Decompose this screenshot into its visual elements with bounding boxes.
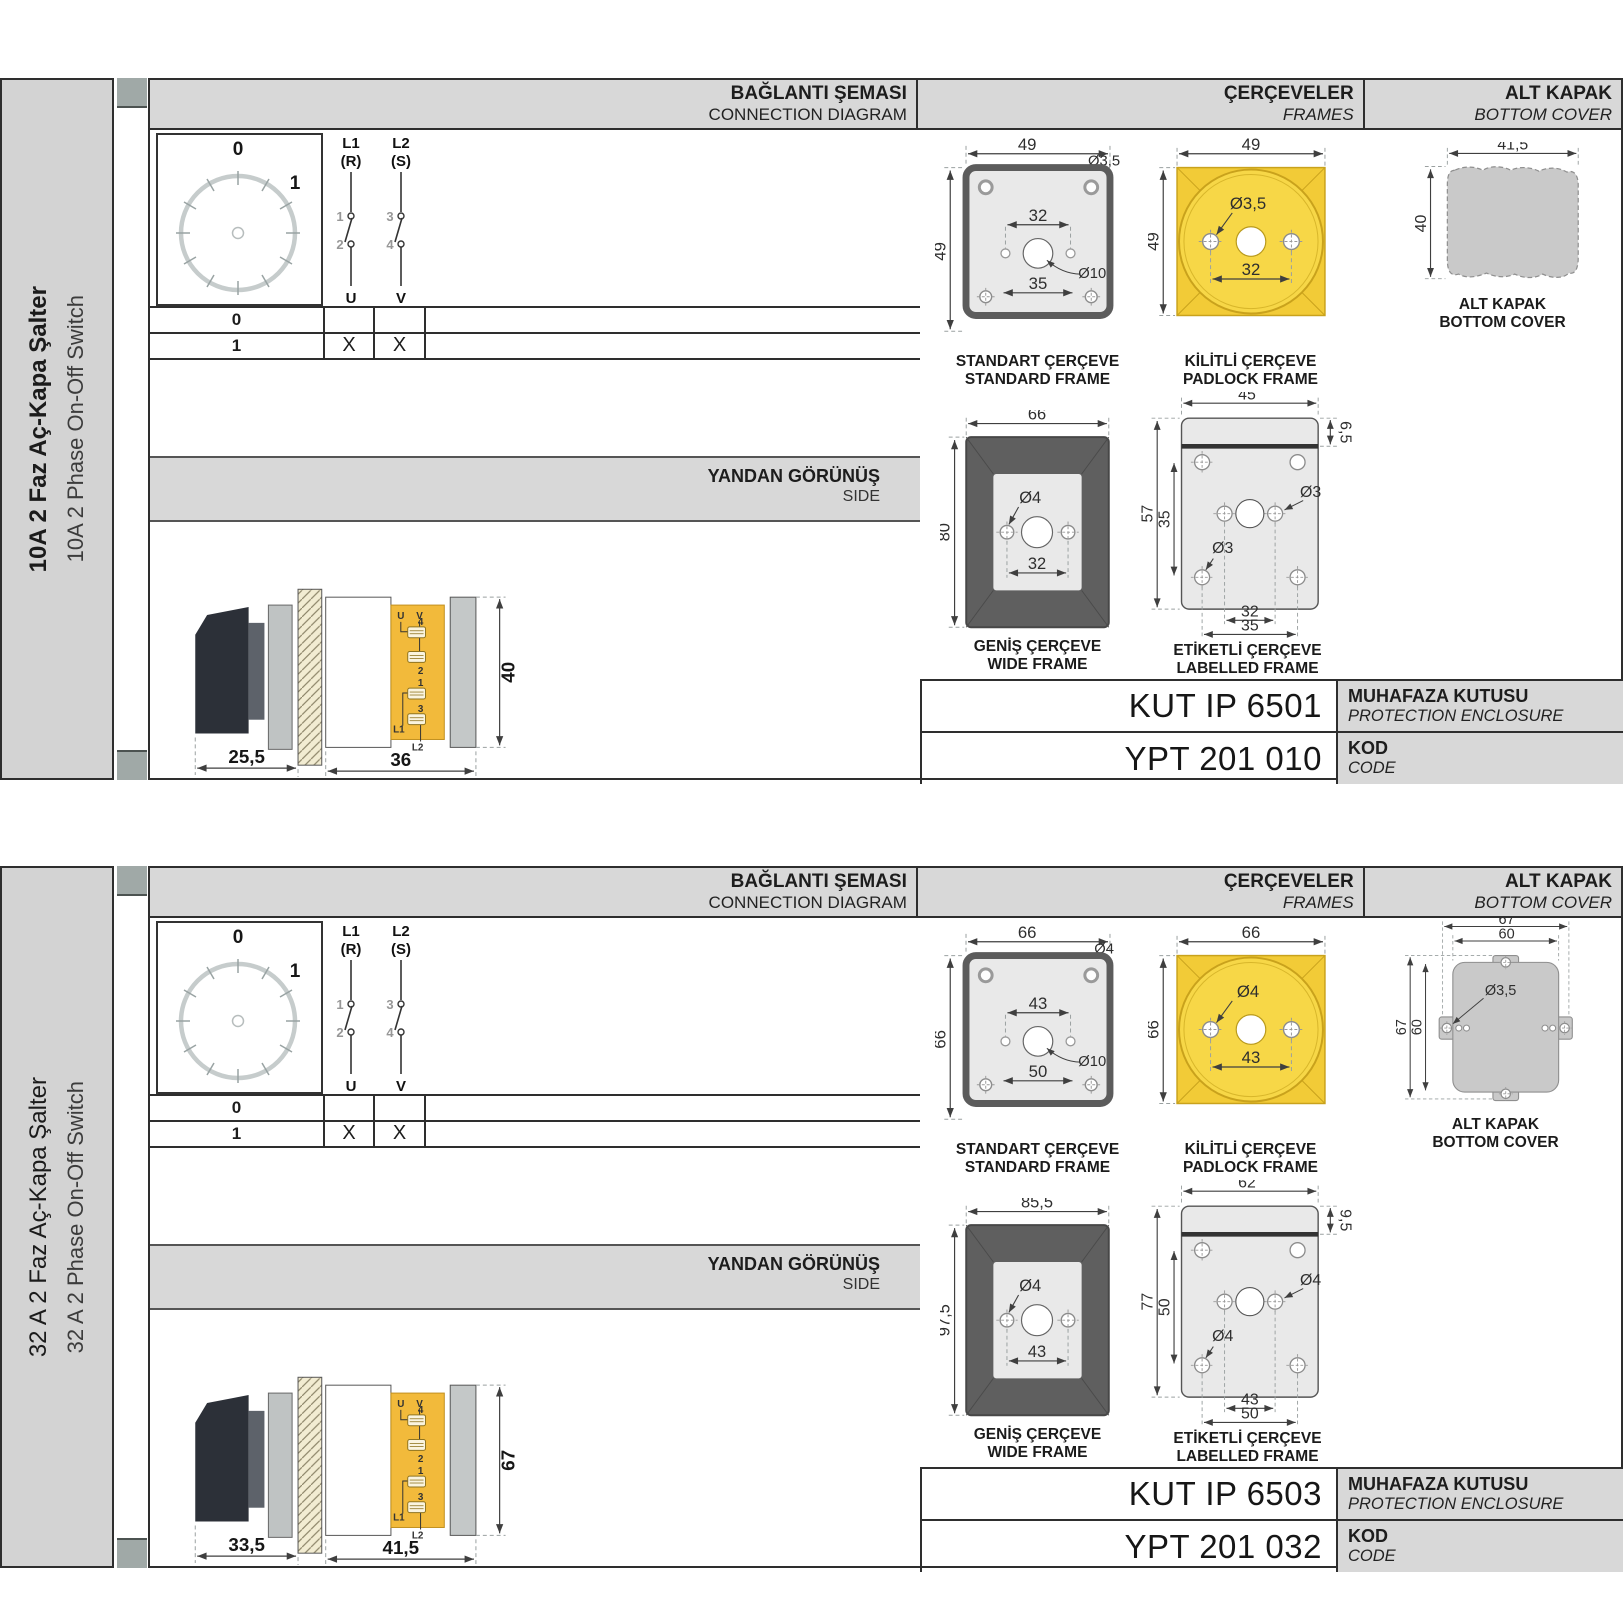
row1-v-cell: X bbox=[375, 334, 426, 358]
enclosure-label: MUHAFAZA KUTUSU PROTECTION ENCLOSURE bbox=[1336, 1469, 1623, 1519]
dim-std-span-inner: 43 bbox=[1029, 994, 1048, 1013]
side-l2-label: L2 bbox=[412, 742, 424, 753]
phase-l1-label: L1 bbox=[342, 135, 360, 152]
row1-u-cell: X bbox=[325, 1122, 375, 1146]
product-code: YPT 201 032 bbox=[922, 1521, 1336, 1572]
header-frames-en: FRAMES bbox=[918, 893, 1354, 913]
dial-position-0: 0 bbox=[233, 927, 244, 948]
caption-tr: STANDART ÇERÇEVE bbox=[935, 1141, 1140, 1159]
header-frames-tr: ÇERÇEVELER bbox=[918, 871, 1354, 893]
header-connection-en: CONNECTION DIAGRAM bbox=[150, 893, 907, 913]
standard-frame-drawing: 66 Ø4 66 43 Ø10 50 bbox=[935, 926, 1140, 1138]
panel-plate bbox=[298, 1377, 322, 1553]
row1-v-cell: X bbox=[375, 1122, 426, 1146]
side-view-title-tr: YANDAN GÖRÜNÜŞ bbox=[150, 1254, 880, 1275]
caption-en: LABELLED FRAME bbox=[1135, 1448, 1360, 1466]
caption-tr: GENİŞ ÇERÇEVE bbox=[940, 1426, 1135, 1444]
wide-frame-caption: GENİŞ ÇERÇEVE WIDE FRAME bbox=[940, 1426, 1135, 1462]
dim-lab-hole-a: Ø3 bbox=[1300, 484, 1321, 501]
side-u-label: U bbox=[397, 1399, 404, 1410]
terminal-v-label: V bbox=[396, 290, 406, 306]
header-cover-tr: ALT KAPAK bbox=[1365, 871, 1612, 893]
wide-frame-drawing: 66 80 Ø4 32 bbox=[940, 410, 1135, 635]
dim-std-height: 49 bbox=[935, 242, 949, 261]
dim-lab-height: 77 bbox=[1140, 1293, 1157, 1311]
contact-4: 4 bbox=[386, 1025, 394, 1040]
row-position-1: 1 bbox=[150, 334, 325, 358]
dim-pad-width: 49 bbox=[1242, 138, 1261, 154]
side-view-drawing: U V 4 2 1 3 L1 bbox=[175, 1316, 595, 1568]
bottom-cover-drawing: 67 60 67 60 Ø3,5 bbox=[1393, 918, 1598, 1110]
table-row: 0 bbox=[150, 308, 920, 334]
caption-en: LABELLED FRAME bbox=[1135, 660, 1360, 678]
product-title-en: 32 A 2 Phase On-Off Switch bbox=[63, 1081, 89, 1353]
header-frames-en: FRAMES bbox=[918, 105, 1354, 125]
caption-en: WIDE FRAME bbox=[940, 1444, 1135, 1462]
contact-1: 1 bbox=[336, 997, 343, 1012]
bottom-cover-caption: ALT KAPAK BOTTOM COVER bbox=[1393, 1116, 1598, 1152]
dim-side-front: 33,5 bbox=[228, 1534, 265, 1555]
caption-tr: ALT KAPAK bbox=[1393, 1116, 1598, 1134]
code-label-tr: KOD bbox=[1348, 737, 1617, 759]
row1-spacer bbox=[426, 1122, 920, 1146]
dim-pad-hole: Ø3,5 bbox=[1230, 194, 1266, 213]
phase-r-label: (R) bbox=[341, 153, 362, 170]
dim-lab-hole-a: Ø4 bbox=[1300, 1272, 1321, 1289]
dim-std-span-inner: 32 bbox=[1029, 206, 1048, 225]
cover-outline bbox=[1447, 167, 1578, 278]
code-label-tr: KOD bbox=[1348, 1525, 1617, 1547]
caption-tr: KİLİTLİ ÇERÇEVE bbox=[1148, 1141, 1353, 1159]
wide-frame-caption: GENİŞ ÇERÇEVE WIDE FRAME bbox=[940, 638, 1135, 674]
caption-tr: GENİŞ ÇERÇEVE bbox=[940, 638, 1135, 656]
caption-en: STANDARD FRAME bbox=[935, 371, 1140, 389]
product-title-tr: 32 A 2 Faz Aç-Kapa Şalter bbox=[25, 1077, 53, 1357]
side-l1-label: L1 bbox=[393, 1513, 405, 1524]
phase-s-label: (S) bbox=[391, 153, 411, 170]
dim-lab-height-inner: 35 bbox=[1156, 510, 1173, 528]
table-row: 1 X X bbox=[150, 334, 920, 360]
dim-std-width: 66 bbox=[1018, 926, 1037, 942]
dim-pad-height: 49 bbox=[1148, 232, 1162, 251]
contact-3: 3 bbox=[386, 997, 393, 1012]
enclosure-label: MUHAFAZA KUTUSU PROTECTION ENCLOSURE bbox=[1336, 681, 1623, 731]
contact-2: 2 bbox=[336, 237, 343, 252]
dim-wide-height: 97,5 bbox=[940, 1304, 954, 1336]
enclosure-code: KUT IP 6501 bbox=[922, 681, 1336, 731]
header-frames: ÇERÇEVELER FRAMES bbox=[918, 80, 1365, 128]
dial-position-1: 1 bbox=[290, 173, 301, 194]
labelled-frame-caption: ETİKETLİ ÇERÇEVE LABELLED FRAME bbox=[1135, 1430, 1360, 1466]
header-connection-en: CONNECTION DIAGRAM bbox=[150, 105, 907, 125]
header-frames-tr: ÇERÇEVELER bbox=[918, 83, 1354, 105]
phase-l1-label: L1 bbox=[342, 923, 360, 940]
dim-lab-height: 57 bbox=[1140, 505, 1157, 523]
enclosure-row: KUT IP 6503 MUHAFAZA KUTUSU PROTECTION E… bbox=[922, 1469, 1623, 1521]
enclosure-label-en: PROTECTION ENCLOSURE bbox=[1348, 707, 1617, 726]
caption-tr: STANDART ÇERÇEVE bbox=[935, 353, 1140, 371]
terminal-block: U V 4 2 1 3 L1 bbox=[391, 1393, 444, 1541]
column-headers: BAĞLANTI ŞEMASI CONNECTION DIAGRAM ÇERÇE… bbox=[150, 868, 1621, 918]
phase-r-label: (R) bbox=[341, 941, 362, 958]
side-u-label: U bbox=[397, 611, 404, 622]
enclosure-label-tr: MUHAFAZA KUTUSU bbox=[1348, 1473, 1617, 1495]
product-title-en: 10A 2 Phase On-Off Switch bbox=[63, 295, 89, 562]
contact-2: 2 bbox=[336, 1025, 343, 1040]
header-bottom-cover: ALT KAPAK BOTTOM COVER bbox=[1365, 80, 1621, 128]
product-section-32a: 32 A 2 Faz Aç-Kapa Şalter 32 A 2 Phase O… bbox=[0, 866, 1623, 1568]
header-connection-tr: BAĞLANTI ŞEMASI bbox=[150, 871, 907, 893]
side-terminal-1: 1 bbox=[418, 678, 424, 689]
bottom-cover-drawing: 41,5 40 bbox=[1395, 142, 1610, 292]
row0-spacer bbox=[426, 308, 920, 332]
code-label: KOD CODE bbox=[1336, 733, 1623, 784]
row-position-0: 0 bbox=[150, 308, 325, 332]
product-title-tr: 10A 2 Faz Aç-Kapa Şalter bbox=[25, 286, 53, 572]
dim-wide-hole: Ø4 bbox=[1019, 489, 1041, 507]
header-connection-diagram: BAĞLANTI ŞEMASI CONNECTION DIAGRAM bbox=[150, 868, 918, 916]
side-terminal-3: 3 bbox=[418, 704, 424, 715]
side-terminal-3: 3 bbox=[418, 1492, 424, 1503]
labelled-frame-drawing: 62 9,5 77 50 Ø4 Ø4 43 bbox=[1135, 1180, 1360, 1428]
terminal-v-label: V bbox=[396, 1078, 406, 1094]
dim-cover-outer-height: 67 bbox=[1394, 1019, 1410, 1035]
code-label: KOD CODE bbox=[1336, 1521, 1623, 1572]
dim-side-body: 41,5 bbox=[383, 1537, 420, 1558]
panel-plate bbox=[298, 589, 322, 765]
dial-position-0: 0 bbox=[233, 139, 244, 160]
enclosure-label-tr: MUHAFAZA KUTUSU bbox=[1348, 685, 1617, 707]
dim-cover-inner-height: 60 bbox=[1409, 1019, 1425, 1035]
contact-diagram: L1 (R) L2 (S) 1 2 3 4 U V bbox=[316, 134, 456, 306]
side-terminal-2: 2 bbox=[418, 666, 424, 677]
dim-lab-hole-b: Ø4 bbox=[1212, 1328, 1233, 1345]
side-terminal-1: 1 bbox=[418, 1466, 424, 1477]
side-view-header: YANDAN GÖRÜNÜŞ SIDE bbox=[150, 456, 920, 522]
binder-tab-bottom bbox=[117, 1538, 147, 1568]
row0-v-cell bbox=[375, 308, 426, 332]
contact-diagram: L1 (R) L2 (S) 1 2 3 4 U V bbox=[316, 922, 456, 1094]
dim-lab-span-b: 50 bbox=[1241, 1406, 1259, 1423]
bottom-cover-caption: ALT KAPAK BOTTOM COVER bbox=[1395, 296, 1610, 332]
dim-pad-height: 66 bbox=[1148, 1020, 1162, 1039]
switch-handle bbox=[195, 1395, 248, 1521]
header-connection-diagram: BAĞLANTI ŞEMASI CONNECTION DIAGRAM bbox=[150, 80, 918, 128]
dim-wide-width: 66 bbox=[1028, 410, 1046, 424]
header-frames: ÇERÇEVELER FRAMES bbox=[918, 868, 1365, 916]
side-view-title-en: SIDE bbox=[150, 487, 880, 506]
side-terminal-4: 4 bbox=[418, 1405, 424, 1416]
header-connection-tr: BAĞLANTI ŞEMASI bbox=[150, 83, 907, 105]
dim-lab-hole-b: Ø3 bbox=[1212, 540, 1233, 557]
rotary-dial-drawing: 0 1 bbox=[158, 135, 321, 304]
dim-lab-width: 45 bbox=[1238, 392, 1256, 403]
dim-pad-hole: Ø4 bbox=[1237, 982, 1259, 1001]
side-terminal-4: 4 bbox=[418, 617, 424, 628]
code-row: YPT 201 010 KOD CODE bbox=[922, 733, 1623, 784]
enclosure-code: KUT IP 6503 bbox=[922, 1469, 1336, 1519]
caption-en: BOTTOM COVER bbox=[1393, 1134, 1598, 1152]
row0-u-cell bbox=[325, 308, 375, 332]
dim-std-width: 49 bbox=[1018, 138, 1037, 154]
side-terminal-2: 2 bbox=[418, 1454, 424, 1465]
padlock-frame-drawing: 66 66 Ø4 43 bbox=[1148, 926, 1353, 1138]
codes-table: KUT IP 6501 MUHAFAZA KUTUSU PROTECTION E… bbox=[920, 679, 1623, 784]
header-cover-tr: ALT KAPAK bbox=[1365, 83, 1612, 105]
terminal-u-label: U bbox=[346, 290, 357, 306]
dim-lab-strip: 6,5 bbox=[1337, 421, 1354, 443]
code-label-en: CODE bbox=[1348, 1547, 1617, 1566]
dim-std-span-lower: 35 bbox=[1029, 274, 1048, 293]
section-content: BAĞLANTI ŞEMASI CONNECTION DIAGRAM ÇERÇE… bbox=[148, 866, 1623, 1568]
switch-handle bbox=[195, 607, 248, 733]
phase-l2-label: L2 bbox=[392, 135, 410, 152]
wide-frame-drawing: 85,5 97,5 Ø4 43 bbox=[940, 1198, 1135, 1423]
caption-tr: KİLİTLİ ÇERÇEVE bbox=[1148, 353, 1353, 371]
labelled-frame-caption: ETİKETLİ ÇERÇEVE LABELLED FRAME bbox=[1135, 642, 1360, 678]
dim-wide-span: 43 bbox=[1028, 1343, 1046, 1361]
dim-side-front: 25,5 bbox=[228, 746, 265, 767]
dim-lab-height-inner: 50 bbox=[1156, 1298, 1173, 1316]
labelled-frame-drawing: 45 6,5 57 35 Ø3 Ø3 32 bbox=[1135, 392, 1360, 640]
row1-u-cell: X bbox=[325, 334, 375, 358]
terminal-block: U V 4 2 1 3 L1 bbox=[391, 605, 444, 753]
terminal-u-label: U bbox=[346, 1078, 357, 1094]
header-cover-en: BOTTOM COVER bbox=[1365, 893, 1612, 913]
dim-pad-span: 43 bbox=[1242, 1048, 1261, 1067]
dim-cover-inner-width: 60 bbox=[1499, 926, 1515, 942]
padlock-frame-caption: KİLİTLİ ÇERÇEVE PADLOCK FRAME bbox=[1148, 353, 1353, 389]
rotary-dial-box: 0 1 bbox=[156, 921, 323, 1094]
side-l1-label: L1 bbox=[393, 725, 405, 736]
row0-v-cell bbox=[375, 1096, 426, 1120]
caption-tr: ETİKETLİ ÇERÇEVE bbox=[1135, 1430, 1360, 1448]
dim-lab-span-b: 35 bbox=[1241, 618, 1259, 635]
dim-std-center-hole: Ø10 bbox=[1078, 266, 1106, 282]
row-position-0: 0 bbox=[150, 1096, 325, 1120]
row1-spacer bbox=[426, 334, 920, 358]
product-section-10a: 10A 2 Faz Aç-Kapa Şalter 10A 2 Phase On-… bbox=[0, 78, 1623, 780]
section-content: BAĞLANTI ŞEMASI CONNECTION DIAGRAM ÇERÇE… bbox=[148, 78, 1623, 780]
codes-table: KUT IP 6503 MUHAFAZA KUTUSU PROTECTION E… bbox=[920, 1467, 1623, 1572]
contact-3: 3 bbox=[386, 209, 393, 224]
padlock-frame-drawing: 49 49 Ø3,5 32 bbox=[1148, 138, 1353, 350]
standard-frame-caption: STANDART ÇERÇEVE STANDARD FRAME bbox=[935, 353, 1140, 389]
dim-std-center-hole: Ø10 bbox=[1078, 1054, 1106, 1070]
rotary-dial-box: 0 1 bbox=[156, 133, 323, 306]
product-code: YPT 201 010 bbox=[922, 733, 1336, 784]
product-label-bar: 32 A 2 Faz Aç-Kapa Şalter 32 A 2 Phase O… bbox=[0, 866, 114, 1568]
dim-side-body: 36 bbox=[390, 749, 411, 770]
enclosure-row: KUT IP 6501 MUHAFAZA KUTUSU PROTECTION E… bbox=[922, 681, 1623, 733]
binder-tab-top bbox=[117, 78, 147, 108]
dim-lab-strip: 9,5 bbox=[1337, 1209, 1354, 1231]
caption-en: PADLOCK FRAME bbox=[1148, 371, 1353, 389]
side-view-header: YANDAN GÖRÜNÜŞ SIDE bbox=[150, 1244, 920, 1310]
row0-u-cell bbox=[325, 1096, 375, 1120]
dim-wide-width: 85,5 bbox=[1021, 1198, 1053, 1212]
dim-pad-width: 66 bbox=[1242, 926, 1261, 942]
caption-en: BOTTOM COVER bbox=[1395, 314, 1610, 332]
code-label-en: CODE bbox=[1348, 759, 1617, 778]
product-label-bar: 10A 2 Faz Aç-Kapa Şalter 10A 2 Phase On-… bbox=[0, 78, 114, 780]
contact-1: 1 bbox=[336, 209, 343, 224]
dim-cover-width: 41,5 bbox=[1497, 142, 1528, 154]
side-view-drawing: U V 4 2 1 3 L1 bbox=[175, 528, 595, 780]
dim-side-height: 40 bbox=[497, 662, 518, 683]
dim-wide-height: 80 bbox=[940, 523, 954, 541]
switching-table: 0 1 X X bbox=[150, 1094, 920, 1148]
dim-lab-width: 62 bbox=[1238, 1180, 1256, 1191]
table-row: 1 X X bbox=[150, 1122, 920, 1148]
rotary-dial-drawing: 0 1 bbox=[158, 923, 321, 1092]
side-view-title-tr: YANDAN GÖRÜNÜŞ bbox=[150, 466, 880, 487]
switching-table: 0 1 X X bbox=[150, 306, 920, 360]
caption-en: WIDE FRAME bbox=[940, 656, 1135, 674]
contact-4: 4 bbox=[386, 237, 394, 252]
row-position-1: 1 bbox=[150, 1122, 325, 1146]
dim-side-height: 67 bbox=[497, 1450, 518, 1471]
enclosure-label-en: PROTECTION ENCLOSURE bbox=[1348, 1495, 1617, 1514]
header-bottom-cover: ALT KAPAK BOTTOM COVER bbox=[1365, 868, 1621, 916]
row0-spacer bbox=[426, 1096, 920, 1120]
dim-wide-hole: Ø4 bbox=[1019, 1277, 1041, 1295]
caption-en: STANDARD FRAME bbox=[935, 1159, 1140, 1177]
binder-tab-top bbox=[117, 866, 147, 896]
dim-cover-hole: Ø3,5 bbox=[1485, 983, 1516, 999]
table-row: 0 bbox=[150, 1096, 920, 1122]
dim-std-height: 66 bbox=[935, 1030, 949, 1049]
dim-wide-span: 32 bbox=[1028, 555, 1046, 573]
column-headers: BAĞLANTI ŞEMASI CONNECTION DIAGRAM ÇERÇE… bbox=[150, 80, 1621, 130]
code-row: YPT 201 032 KOD CODE bbox=[922, 1521, 1623, 1572]
header-cover-en: BOTTOM COVER bbox=[1365, 105, 1612, 125]
phase-l2-label: L2 bbox=[392, 923, 410, 940]
side-view-title-en: SIDE bbox=[150, 1275, 880, 1294]
dial-position-1: 1 bbox=[290, 961, 301, 982]
dim-pad-span: 32 bbox=[1242, 260, 1261, 279]
binder-tab-bottom bbox=[117, 750, 147, 780]
caption-en: PADLOCK FRAME bbox=[1148, 1159, 1353, 1177]
caption-tr: ALT KAPAK bbox=[1395, 296, 1610, 314]
dim-cover-height: 40 bbox=[1413, 215, 1430, 233]
phase-s-label: (S) bbox=[391, 941, 411, 958]
standard-frame-caption: STANDART ÇERÇEVE STANDARD FRAME bbox=[935, 1141, 1140, 1177]
standard-frame-drawing: 49 Ø3,5 49 32 Ø10 35 bbox=[935, 138, 1140, 350]
dim-std-span-lower: 50 bbox=[1029, 1062, 1048, 1081]
caption-tr: ETİKETLİ ÇERÇEVE bbox=[1135, 642, 1360, 660]
padlock-frame-caption: KİLİTLİ ÇERÇEVE PADLOCK FRAME bbox=[1148, 1141, 1353, 1177]
